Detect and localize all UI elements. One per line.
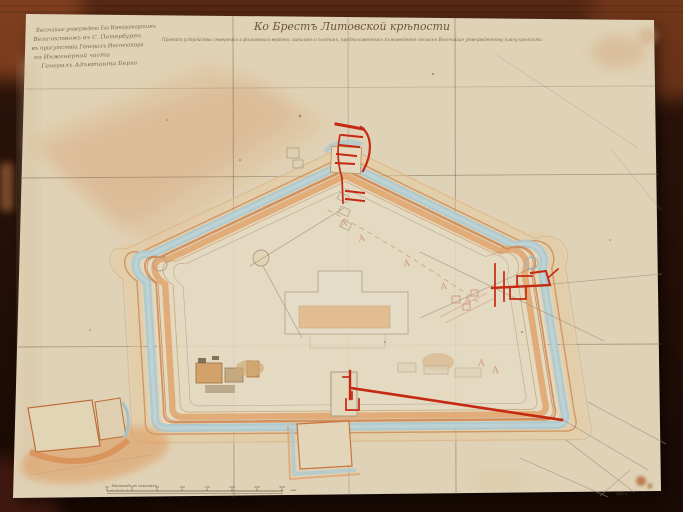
photo-of-fortress-map: А А А А А А А <box>0 0 683 512</box>
photo-tint-overlay <box>0 0 683 512</box>
map-photo-canvas: А А А А А А А <box>0 0 683 512</box>
